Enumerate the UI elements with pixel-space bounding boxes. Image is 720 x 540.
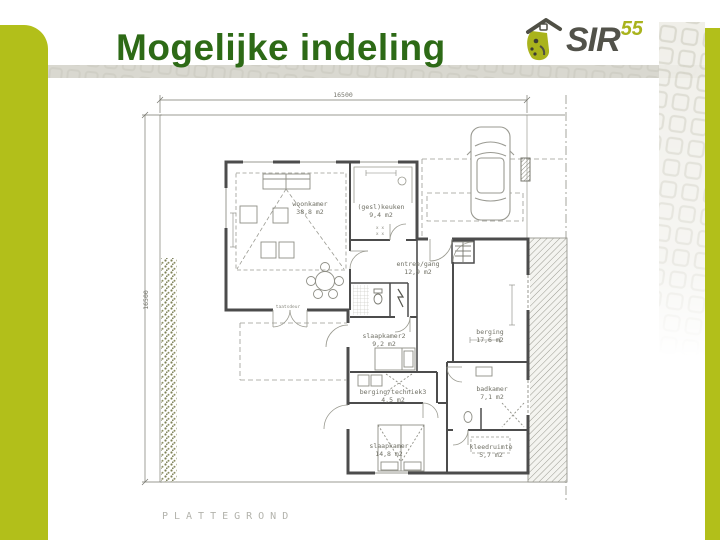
presentation-slide: Mogelijke indeling SIR 55 — [0, 0, 720, 540]
dimension-left-label: 16500 — [142, 290, 150, 310]
room-area-woonkamer: 38,8 m2 — [296, 208, 323, 216]
room-label-badkamer: badkamer — [476, 385, 507, 393]
tile-floor — [353, 285, 369, 315]
plan-caption: PLATTEGROND — [162, 511, 294, 522]
room-area-slaapkamer2: 9,2 m2 — [372, 340, 396, 348]
room-label-berging: berging — [476, 328, 503, 336]
right-accent-bar — [705, 28, 720, 540]
decor-pattern-strip — [659, 22, 705, 357]
hatched-border-area — [528, 238, 567, 482]
toilet-icon — [464, 412, 472, 423]
room-area-kleedruimte: 5,7 m2 — [479, 451, 503, 459]
room-area-badkamer: 7,1 m2 — [480, 393, 504, 401]
dimension-top-label: 16500 — [333, 91, 353, 99]
floor-plan: 16500 16500 — [140, 85, 600, 530]
pivot-door-label: taatsdeur — [276, 304, 301, 310]
toilet-icon — [374, 289, 382, 304]
room-area-techniek: 4,5 m2 — [381, 396, 405, 404]
room-label-entree: entree/gang — [396, 260, 439, 268]
room-label-woonkamer: woonkamer — [292, 200, 327, 208]
room-label-techniek: berging/techniek3 — [360, 388, 427, 396]
logo-text: SIR — [566, 16, 620, 64]
room-label-slaapkamer2: slaapkamer2 — [362, 332, 405, 340]
terrace-outline — [240, 323, 347, 380]
kitchen-mark: x x — [376, 232, 384, 237]
room-area-slaapkamer: 14,8 m2 — [375, 450, 402, 458]
room-label-kleedruimte: kleedruimte — [469, 443, 512, 451]
logo-superscript: 55 — [621, 18, 643, 41]
kitchen-mark: x x — [376, 226, 384, 231]
hedge-texture — [161, 258, 177, 482]
sir55-logo-icon — [520, 16, 566, 64]
carport-pillar — [521, 158, 530, 181]
room-area-keuken: 9,4 m2 — [369, 211, 393, 219]
car-icon — [467, 127, 514, 220]
sink-icon — [476, 367, 492, 376]
room-label-slaapkamer: slaapkamer — [369, 442, 408, 450]
page-title: Mogelijke indeling — [116, 27, 536, 69]
sir55-logo: SIR 55 — [520, 16, 705, 68]
left-accent-bar — [0, 25, 48, 540]
room-label-keuken: (gesl)keuken — [358, 203, 405, 211]
room-area-entree: 12,9 m2 — [404, 268, 431, 276]
room-area-berging: 17,6 m2 — [476, 336, 503, 344]
